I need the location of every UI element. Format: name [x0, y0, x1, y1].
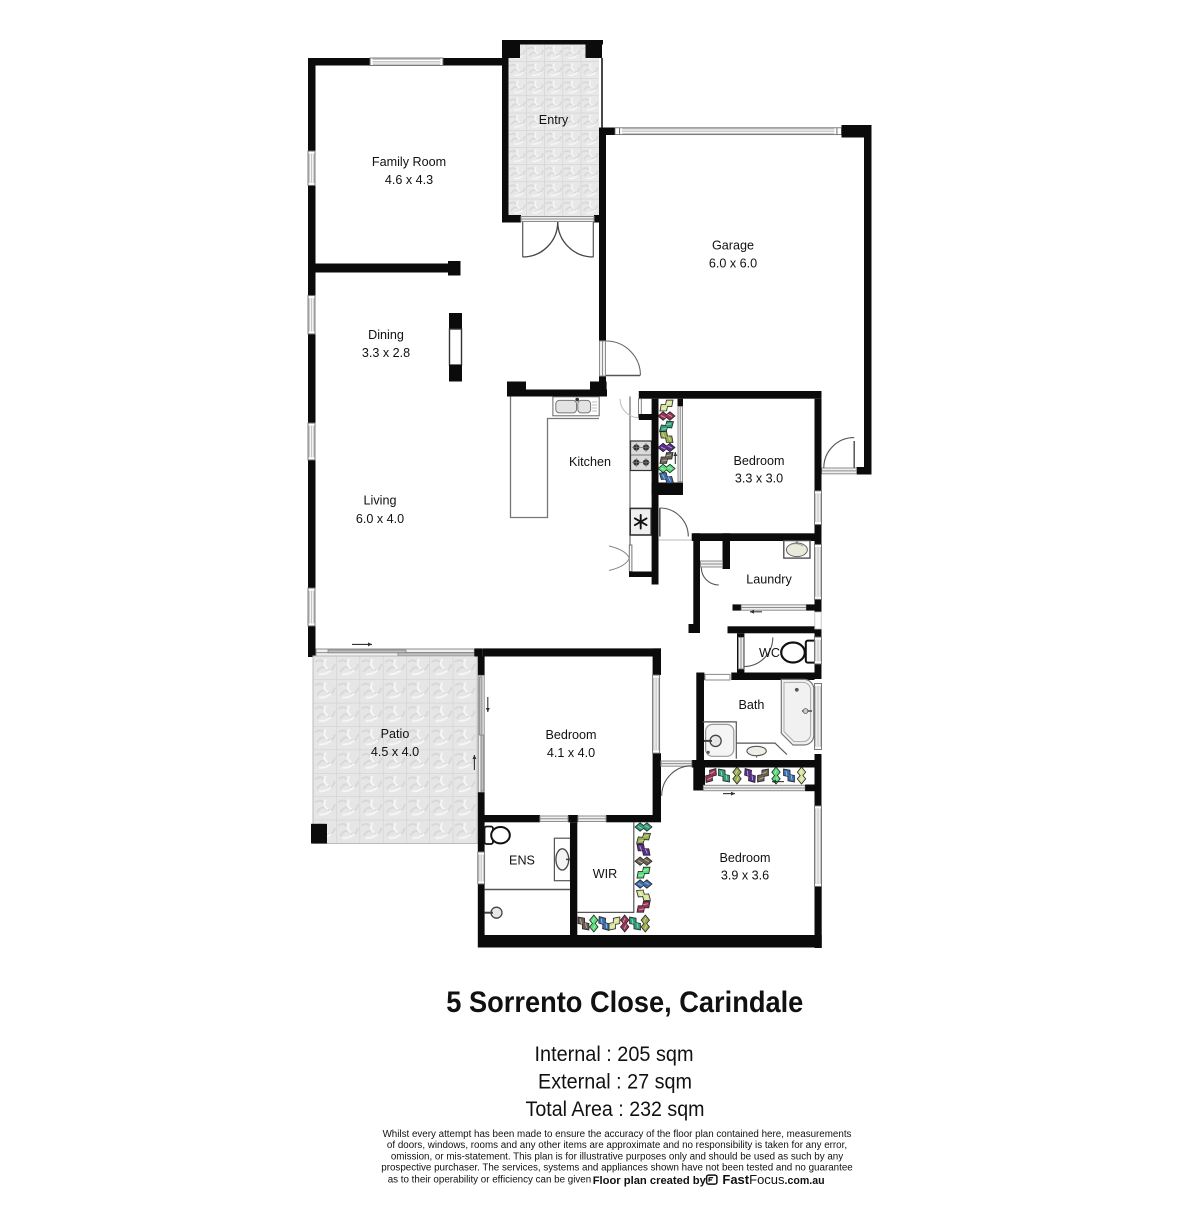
svg-text:Bedroom: Bedroom [719, 851, 770, 865]
svg-text:6.0 x 4.0: 6.0 x 4.0 [356, 512, 404, 526]
svg-text:ENS: ENS [509, 854, 535, 868]
svg-text:Internal : 205 sqm: Internal : 205 sqm [535, 1042, 694, 1066]
svg-text:Bedroom: Bedroom [545, 728, 596, 742]
svg-text:Patio: Patio [381, 727, 410, 741]
svg-text:5 Sorrento Close, Carindale: 5 Sorrento Close, Carindale [446, 986, 803, 1019]
svg-text:6.0 x 6.0: 6.0 x 6.0 [709, 257, 757, 271]
svg-text:as to their operability or eff: as to their operability or efficiency ca… [388, 1175, 592, 1186]
svg-text:4.1 x 4.0: 4.1 x 4.0 [547, 746, 595, 760]
svg-text:External : 27 sqm: External : 27 sqm [538, 1070, 692, 1094]
svg-text:Dining: Dining [368, 328, 404, 342]
svg-text:FastFocus.com.au: FastFocus.com.au [722, 1172, 824, 1187]
svg-text:WIR: WIR [593, 867, 617, 881]
svg-text:Entry: Entry [539, 113, 569, 127]
svg-text:Floor plan created by: Floor plan created by [593, 1175, 707, 1187]
svg-text:Bedroom: Bedroom [733, 454, 784, 468]
svg-text:3.9 x 3.6: 3.9 x 3.6 [721, 869, 769, 883]
svg-text:Total Area : 232 sqm: Total Area : 232 sqm [526, 1097, 705, 1121]
svg-text:Kitchen: Kitchen [569, 455, 611, 469]
svg-text:omission, or mis-statement. Th: omission, or mis-statement. This plan is… [391, 1151, 843, 1162]
svg-text:Family Room: Family Room [372, 155, 446, 169]
svg-text:Laundry: Laundry [746, 573, 792, 587]
svg-text:3.3 x 2.8: 3.3 x 2.8 [362, 346, 410, 360]
svg-text:Garage: Garage [712, 239, 754, 253]
svg-text:4.5 x 4.0: 4.5 x 4.0 [371, 745, 419, 759]
svg-text:3.3 x 3.0: 3.3 x 3.0 [735, 472, 783, 486]
svg-text:Whilst every attempt has been: Whilst every attempt has been made to en… [383, 1129, 852, 1140]
svg-text:Bath: Bath [739, 698, 765, 712]
svg-text:Living: Living [364, 494, 397, 508]
svg-text:of doors, windows, rooms and a: of doors, windows, rooms and any other i… [387, 1140, 847, 1151]
svg-text:WC: WC [759, 646, 780, 660]
svg-text:4.6 x 4.3: 4.6 x 4.3 [385, 173, 433, 187]
